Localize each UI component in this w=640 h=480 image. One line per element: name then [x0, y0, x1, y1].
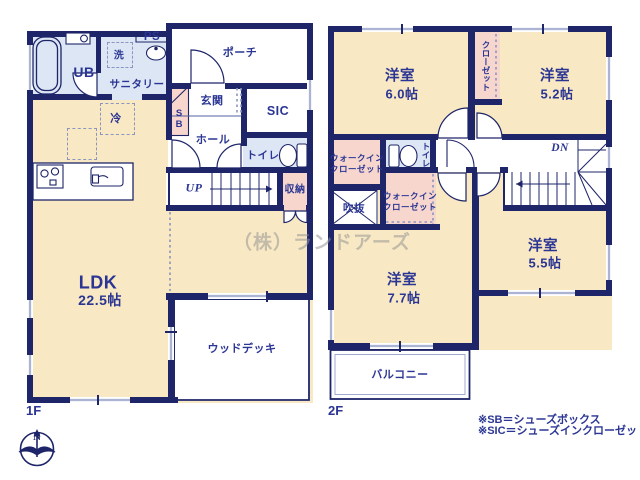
window	[307, 80, 313, 110]
wall-segment	[166, 83, 191, 89]
window	[27, 355, 33, 375]
window	[328, 310, 334, 340]
label-wood-deck: ウッドデッキ	[208, 340, 277, 356]
window	[606, 147, 612, 168]
wall-segment	[241, 132, 313, 138]
wall-segment	[27, 94, 112, 100]
wall-segment	[96, 31, 101, 73]
wall-segment	[468, 32, 475, 140]
wall-segment	[166, 167, 313, 173]
label-sanitary: サニタリー	[110, 77, 165, 92]
window	[512, 26, 568, 32]
window	[208, 293, 268, 299]
wall-segment	[334, 134, 438, 140]
label-room-se-size: 5.5帖	[528, 253, 561, 272]
window	[606, 245, 612, 280]
wall-segment	[241, 83, 247, 138]
label-ps: PS	[144, 31, 160, 43]
label-toilet-1f: トイレ	[247, 148, 280, 163]
label-storage: 収納	[285, 181, 306, 196]
note-sic: ※SIC＝シューズインクローゼット	[478, 422, 640, 438]
label-room-nw: 洋室	[385, 65, 415, 86]
floor-plan-canvas: N UB サニタリー 洗 PS ポーチ 玄関 SIC SB ホール トイレ UP…	[0, 0, 640, 480]
wall-segment	[468, 99, 502, 105]
label-room-nw-size: 6.0帖	[385, 84, 418, 103]
wall-segment	[306, 205, 313, 211]
label-floor-1f: 1F	[26, 403, 41, 418]
window-tick	[542, 24, 544, 34]
label-ub: UB	[73, 64, 94, 80]
label-room-ne-size: 5.2帖	[540, 84, 573, 103]
window-tick	[401, 24, 403, 34]
window-tick	[97, 395, 99, 405]
label-shoebox: SB	[174, 108, 185, 130]
window-tick	[165, 331, 177, 333]
wall-segment	[225, 83, 313, 89]
window	[362, 26, 413, 32]
wall-segment	[502, 134, 606, 140]
label-room-ne: 洋室	[540, 65, 570, 86]
cupboard-space	[67, 128, 97, 160]
window	[70, 397, 130, 403]
kitchen-counter	[33, 163, 133, 200]
label-hall: ホール	[196, 131, 231, 147]
wall-segment	[166, 205, 284, 211]
label-genkan: 玄関	[201, 92, 224, 108]
window-tick	[266, 291, 268, 302]
label-wic1-line2: クローゼット	[330, 163, 384, 175]
label-porch: ポーチ	[223, 44, 258, 60]
compass-icon: N	[19, 429, 55, 466]
label-up: UP	[186, 181, 203, 196]
window-tick	[399, 341, 401, 352]
compass-n-label: N	[33, 431, 41, 443]
label-floor-2f: 2F	[328, 403, 343, 418]
label-room-s-size: 7.7帖	[387, 288, 420, 307]
wall-segment	[472, 173, 479, 350]
wall-segment	[503, 205, 612, 211]
wall-segment	[241, 138, 247, 146]
window	[606, 57, 612, 100]
label-ldk-size: 22.5帖	[78, 290, 122, 310]
label-void: 吹抜	[343, 201, 365, 216]
wall-segment	[142, 94, 168, 100]
wall-segment	[166, 23, 172, 140]
wall-segment	[328, 184, 386, 190]
window	[27, 300, 33, 318]
wall-segment	[166, 23, 313, 29]
wall-segment	[307, 23, 313, 300]
label-sic: SIC	[267, 104, 289, 118]
window	[508, 290, 575, 296]
label-room-s: 洋室	[387, 269, 417, 290]
window-tick	[539, 288, 541, 298]
window	[27, 45, 33, 90]
label-wic2-line2: クローゼット	[383, 201, 437, 213]
label-balcony: バルコニー	[371, 366, 428, 382]
label-dn: DN	[551, 142, 569, 154]
window	[370, 343, 433, 349]
label-wash: 洗	[114, 47, 125, 62]
label-toilet-2f: トイレ	[420, 142, 432, 168]
watermark: （株）ランドアーズ	[233, 228, 411, 255]
label-closet: クローゼット	[480, 41, 492, 92]
label-fridge: 冷	[110, 110, 122, 126]
